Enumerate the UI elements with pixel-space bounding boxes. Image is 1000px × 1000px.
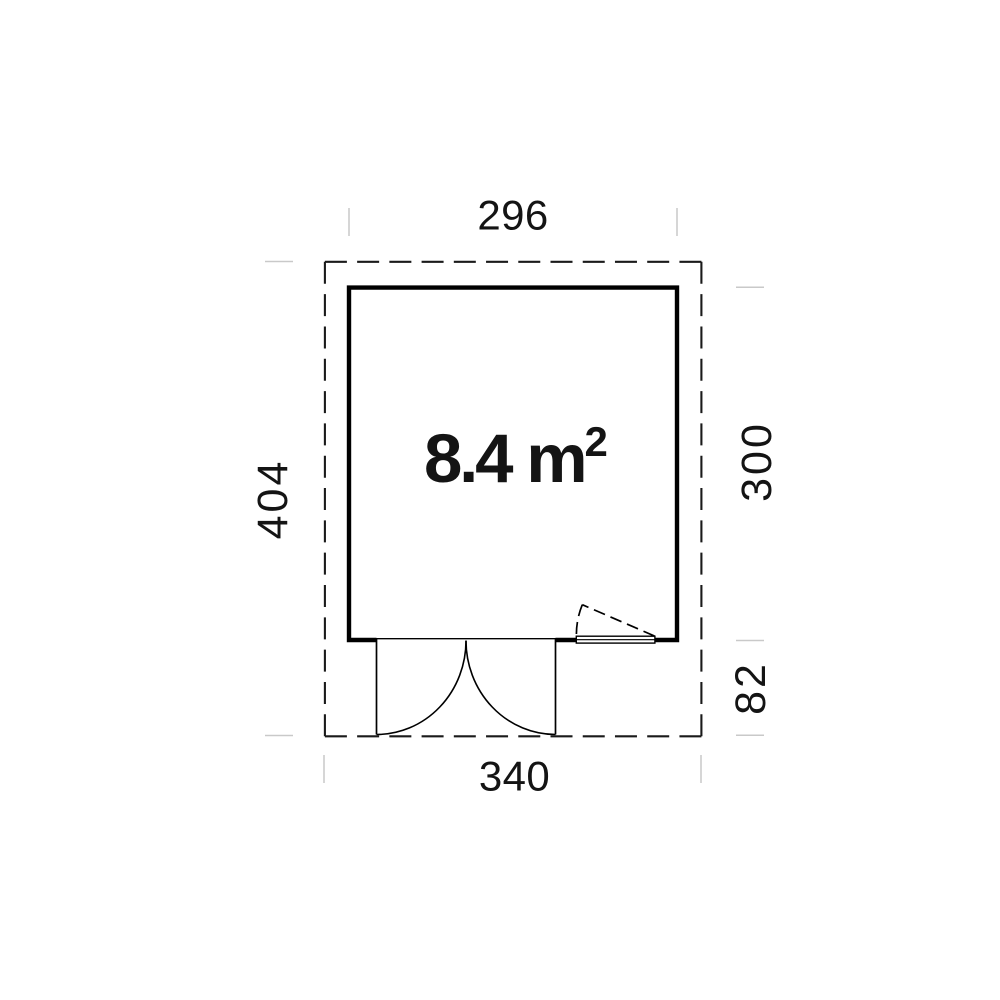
svg-text:404: 404 [249, 459, 297, 540]
svg-text:296: 296 [477, 192, 548, 239]
svg-text:340: 340 [479, 753, 550, 800]
svg-text:82: 82 [727, 661, 775, 715]
svg-text:300: 300 [733, 421, 781, 502]
svg-text:8.4 m2: 8.4 m2 [424, 418, 608, 497]
